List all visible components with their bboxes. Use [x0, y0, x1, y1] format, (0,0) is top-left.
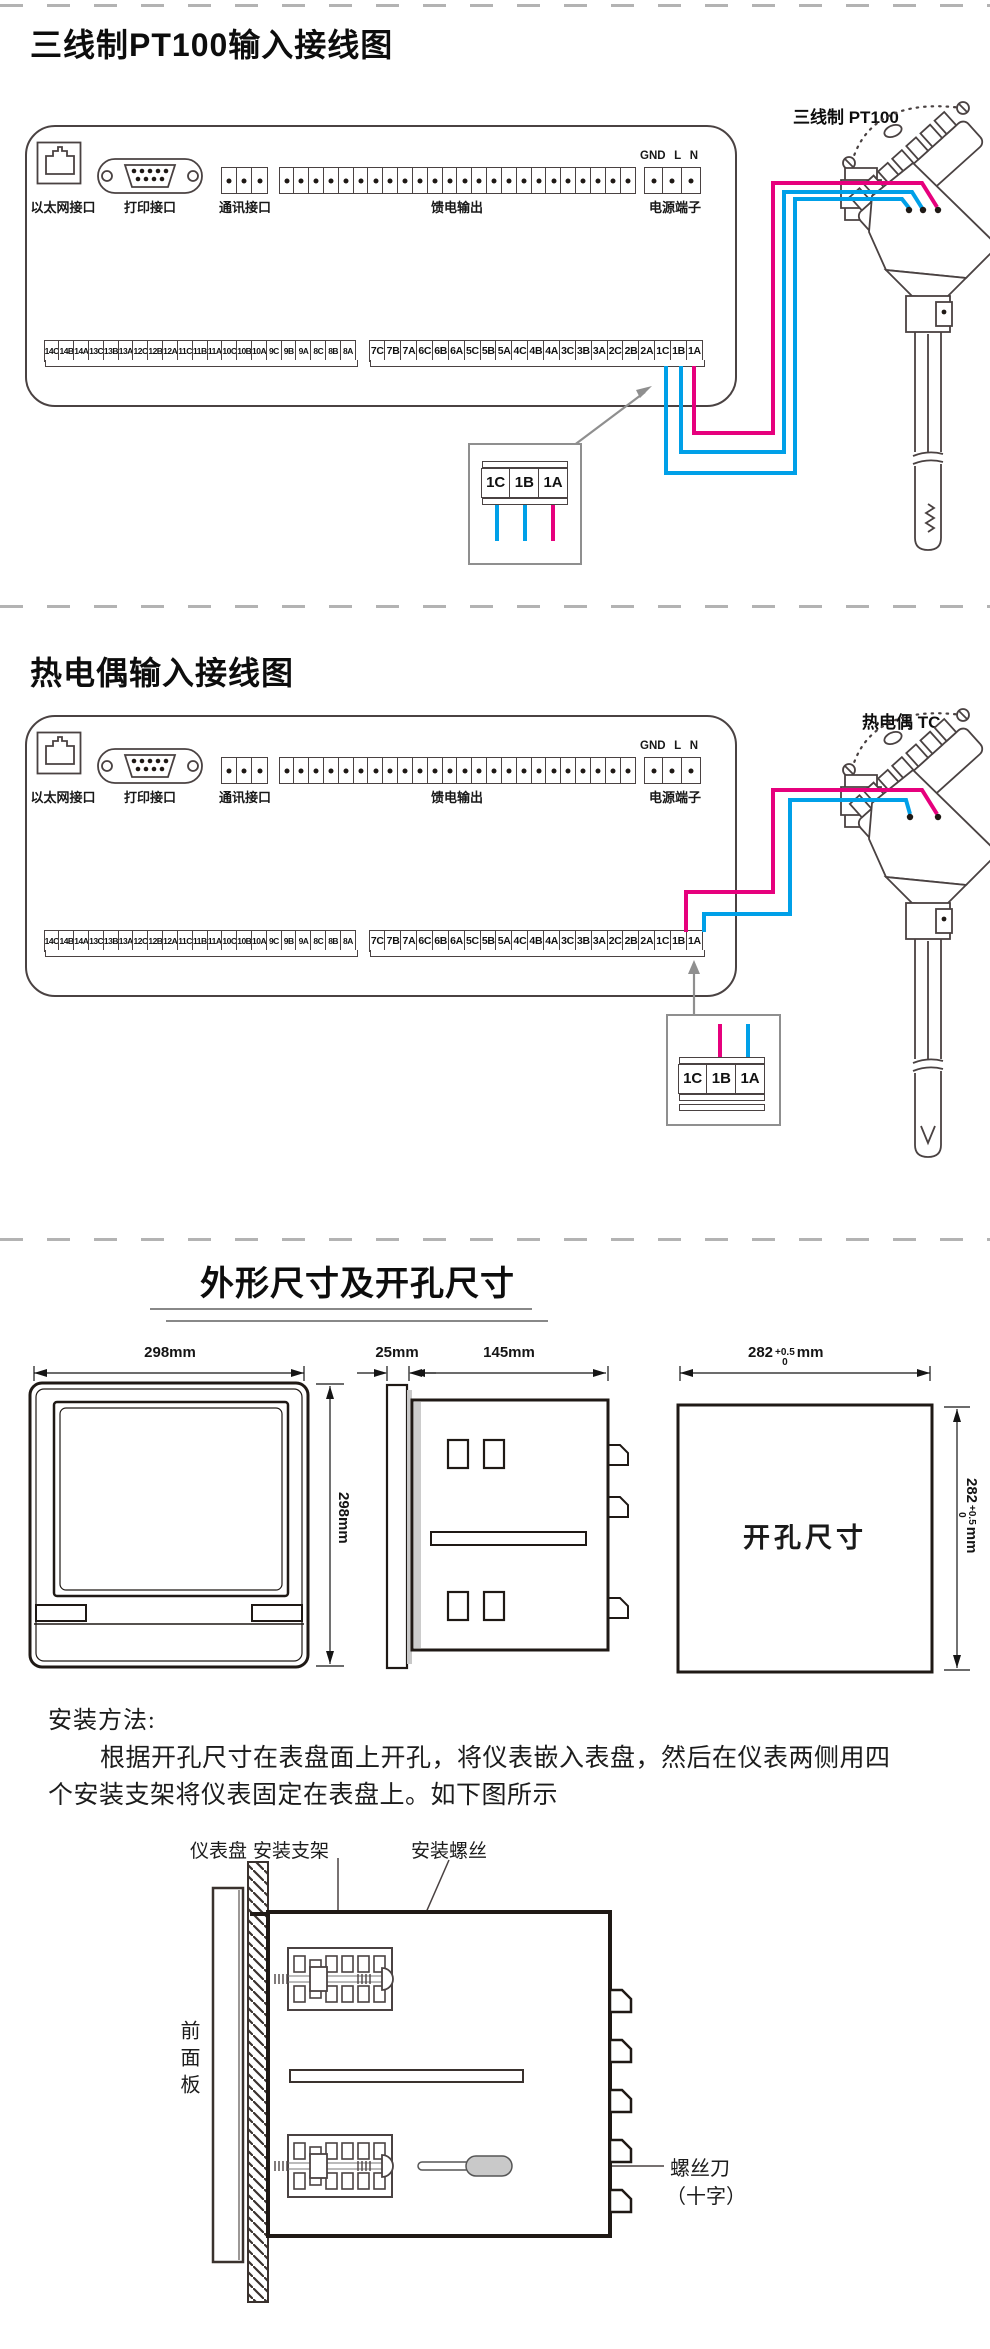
dimensions-section-title: 外形尺寸及开孔尺寸 — [200, 1256, 515, 1305]
cutout-tol-minus: 0 — [775, 1358, 795, 1368]
front-height-dim: 298mm — [335, 1492, 352, 1544]
pt100-detail-box: 1C 1B 1A — [468, 443, 582, 565]
tc-detail-box: 1C 1B 1A — [666, 1014, 781, 1126]
cutout-dim-unit: mm — [797, 1344, 824, 1361]
install-paragraph-line2: 个安装支架将仪表固定在表盘上。如下图所示 — [48, 1775, 558, 1811]
install-paragraph-line1: 根据开孔尺寸在表盘面上开孔，将仪表嵌入表盘，然后在仪表两侧用四 — [100, 1738, 891, 1774]
cutout-dim-value: 282 — [748, 1344, 773, 1361]
mini-terminal-1b: 1B — [706, 1064, 736, 1094]
mounting-claws — [610, 1990, 631, 2212]
mini-strip-bottom — [679, 1094, 765, 1101]
front-width-dim: 298mm — [120, 1344, 220, 1361]
detail-callout-arrow — [688, 960, 700, 1014]
detail-callout-arrow — [573, 386, 652, 446]
mini-strip-bottom — [482, 498, 568, 505]
body-depth-dim: 145mm — [464, 1344, 554, 1361]
rtd-element-icon — [926, 504, 934, 532]
stub-wire-1c — [495, 505, 499, 541]
cutout-height-dim: 282+0.50mm — [956, 1478, 980, 1553]
stub-wire-1b — [523, 505, 527, 541]
title-underline-2 — [166, 1320, 548, 1322]
cutout-area-label: 开孔尺寸 — [678, 1516, 932, 1555]
front-view-drawing — [30, 1383, 308, 1667]
mounting-bracket-bottom — [275, 2135, 393, 2197]
mini-terminal-1a: 1A — [538, 468, 568, 498]
mini-terminal-1b: 1B — [509, 468, 539, 498]
mini-strip-base — [679, 1104, 765, 1111]
install-heading: 安装方法: — [48, 1700, 156, 1735]
cutout-dim-unit: mm — [963, 1527, 980, 1554]
mounting-bracket-top — [275, 1948, 393, 2010]
title-underline-1 — [150, 1308, 532, 1310]
stub-wire-1a — [551, 505, 555, 541]
cutout-dim-value: 282 — [963, 1478, 980, 1503]
cutout-tol-minus: 0 — [956, 1505, 966, 1525]
sensor-terminal-dots — [906, 207, 941, 213]
stub-wire-1a — [746, 1024, 750, 1057]
mini-terminal-cells: 1C 1B 1A — [679, 1064, 765, 1094]
mini-strip-top — [482, 461, 568, 468]
bezel-depth-dim: 25mm — [362, 1344, 432, 1361]
mini-terminal-1c: 1C — [678, 1064, 708, 1094]
manual-page: 三线制PT100输入接线图 以太网接口 打印接口 通讯接口 馈电输出 GND L… — [0, 0, 990, 2349]
installation-diagram — [0, 1855, 990, 2315]
body-slot — [290, 2070, 523, 2082]
mini-terminal-cells: 1C 1B 1A — [482, 468, 568, 498]
tc-wiring-diagram — [0, 607, 990, 1243]
cutout-width-dim: 282+0.50mm — [748, 1344, 823, 1368]
tc-junction-icon — [921, 1126, 935, 1143]
mini-terminal-1c: 1C — [481, 468, 511, 498]
panel-board-wall — [248, 1862, 268, 2302]
stub-wire-1b — [718, 1024, 722, 1057]
mini-terminal-1a: 1A — [735, 1064, 765, 1094]
cutout-tol-plus: +0.5 — [966, 1505, 976, 1525]
front-panel-bezel — [213, 1888, 243, 2262]
dimension-drawings — [0, 1340, 990, 1685]
side-view-drawing — [387, 1385, 628, 1668]
mini-strip-top — [679, 1057, 765, 1064]
